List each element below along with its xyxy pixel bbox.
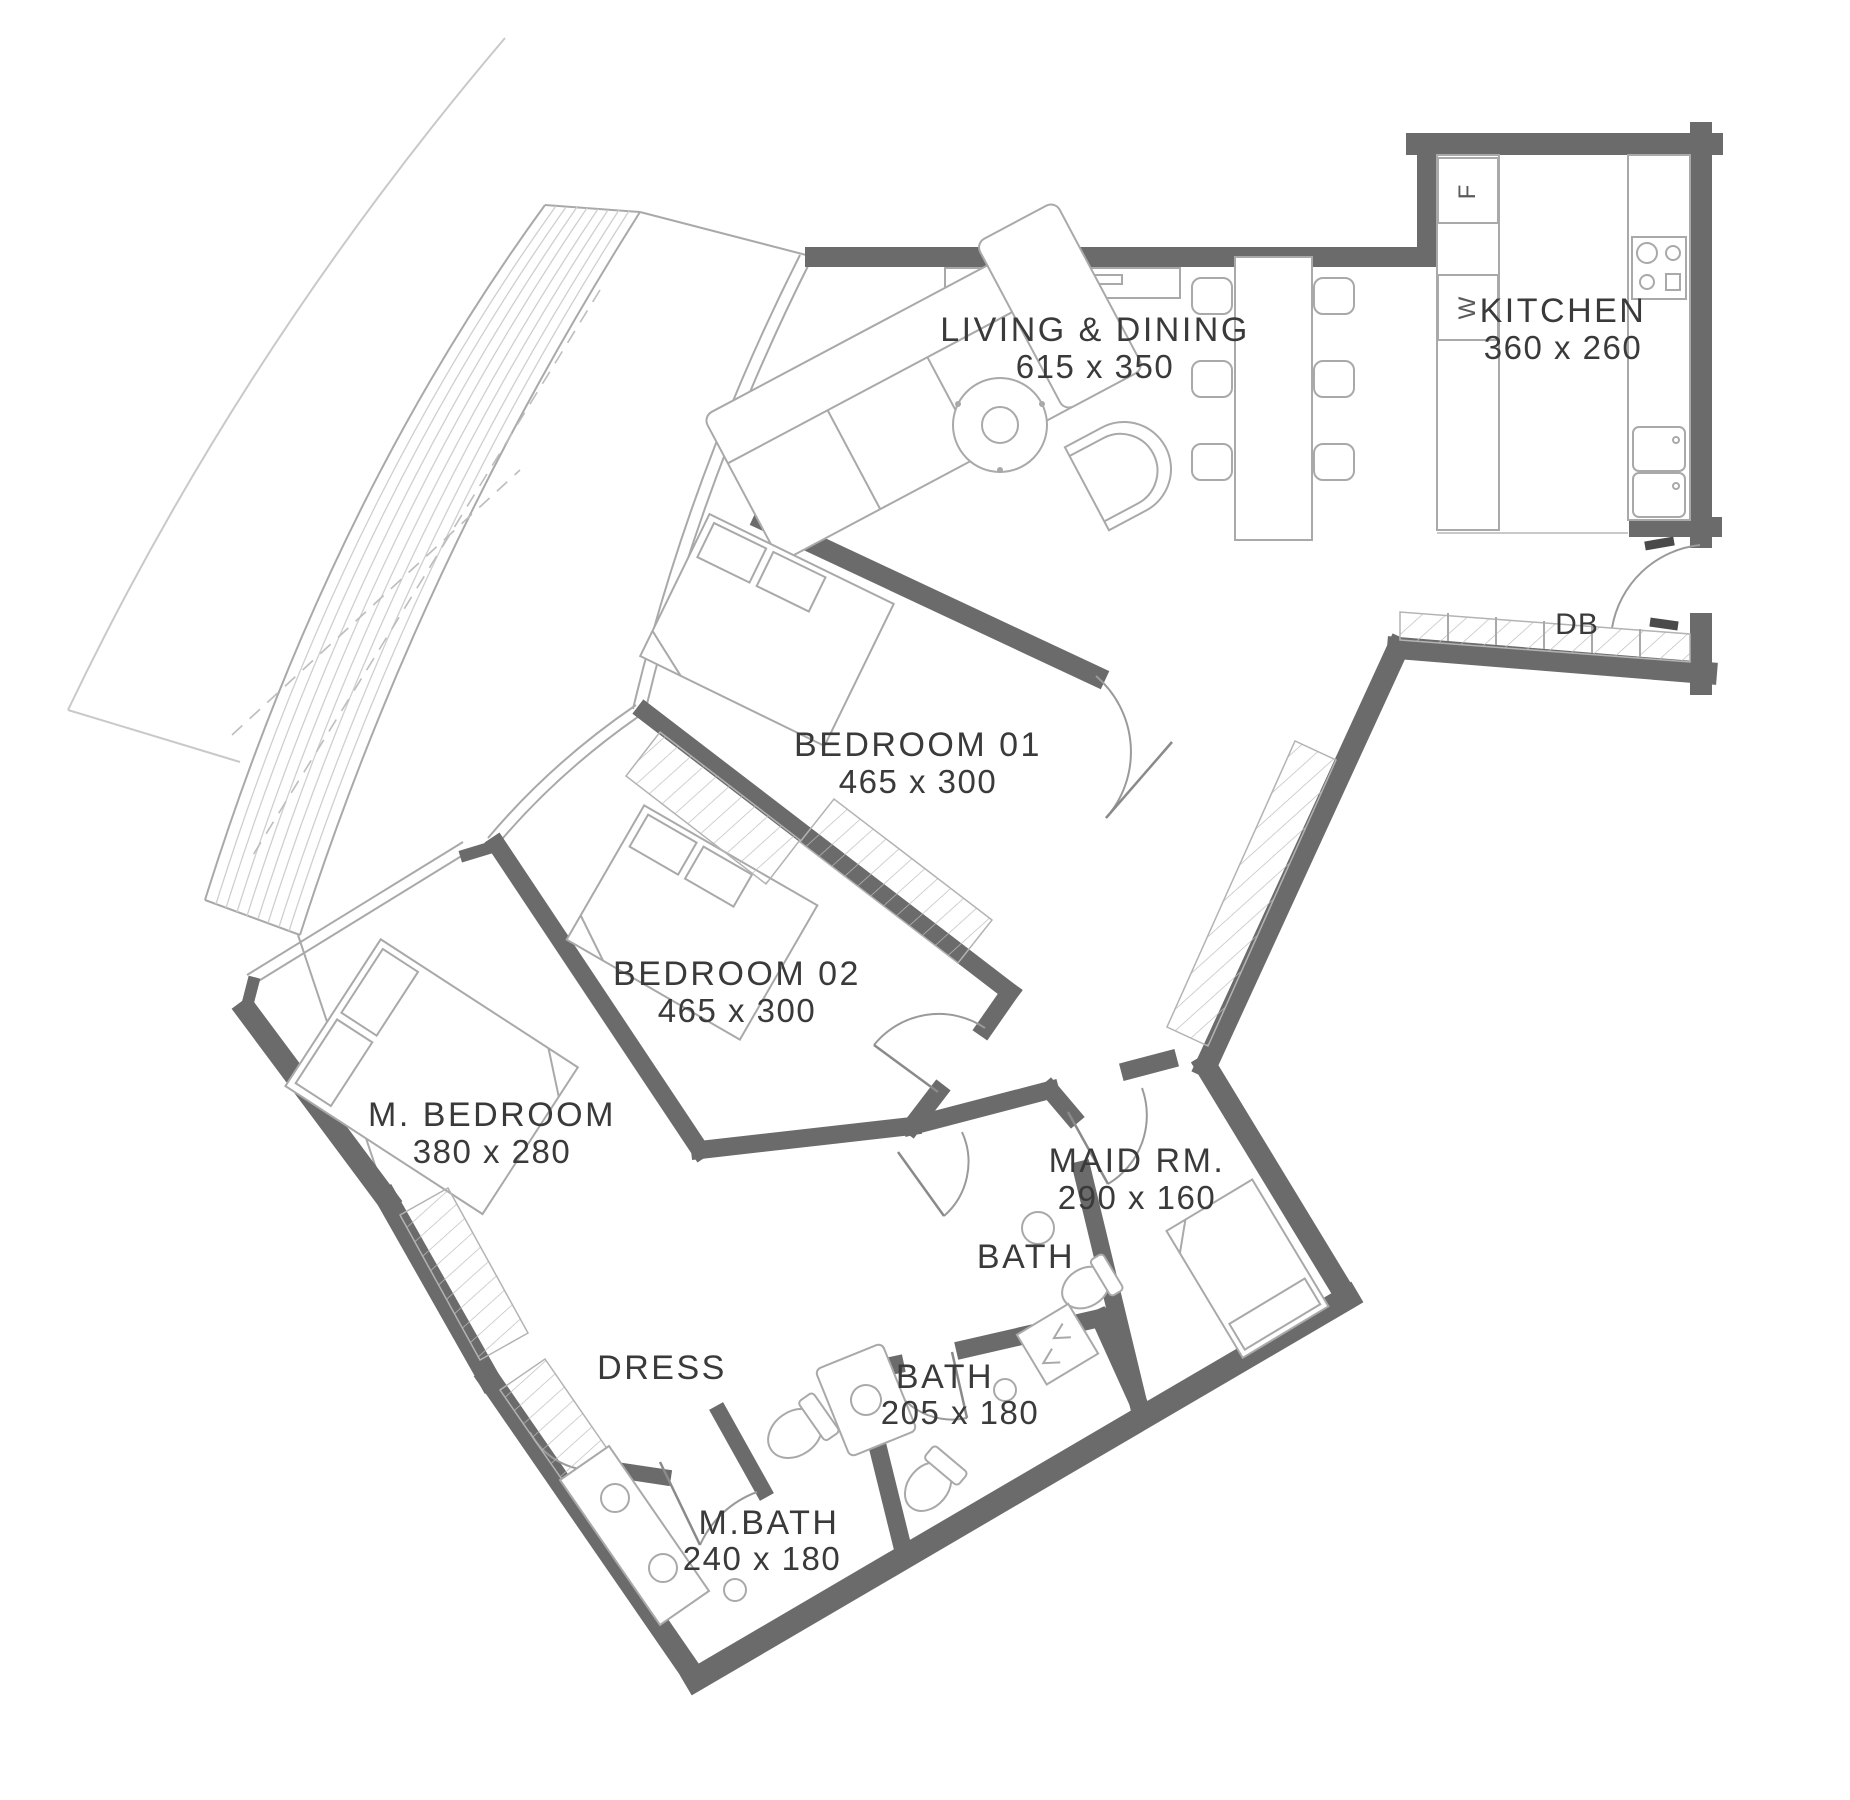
label-kitchen: KITCHEN	[1480, 292, 1647, 330]
stove-icon	[1632, 237, 1686, 299]
deck-inner-edge	[300, 212, 640, 935]
dims-living-dining: 615 x 350	[1016, 348, 1174, 385]
bedroom02-door	[874, 1014, 985, 1092]
dims-master-bedroom: 380 x 280	[413, 1133, 571, 1170]
label-maid-room: MAID RM.	[1049, 1142, 1226, 1180]
dims-kitchen: 360 x 260	[1484, 329, 1642, 366]
master-balcony-slider	[247, 842, 468, 985]
bedroom02-window-inner	[488, 705, 636, 838]
bedroom02-window	[497, 712, 645, 845]
bedroom01-closet	[800, 799, 992, 963]
bath2-toilet	[894, 1445, 968, 1522]
floor-plan-drawing: F W	[0, 0, 1850, 1800]
coffee-table	[953, 378, 1047, 473]
label-maid-bath: BATH	[977, 1238, 1075, 1276]
deck-to-living-line	[640, 212, 810, 256]
entry-door-leaf-bottom	[1650, 622, 1678, 626]
entry-door	[1612, 541, 1700, 628]
wall-wing-bottom	[696, 1298, 1347, 1679]
floor-plan-page: F W	[0, 0, 1850, 1800]
fridge-label: F	[1454, 185, 1481, 200]
label-living-dining: LIVING & DINING	[940, 311, 1250, 349]
wall-corridor-outer	[1206, 648, 1398, 1066]
dining-table-set	[1192, 257, 1354, 540]
label-master-bedroom: M. BEDROOM	[368, 1096, 616, 1134]
label-bedroom02: BEDROOM 02	[613, 955, 861, 993]
label-shared-bath: BATH	[896, 1358, 994, 1396]
site-outer-curve	[68, 38, 505, 710]
wall-corridor-end-pier	[1130, 1060, 1168, 1070]
label-db: DB	[1555, 608, 1599, 641]
corridor-closet	[1167, 741, 1336, 1046]
washer-label: W	[1454, 296, 1481, 319]
deck-planks	[216, 206, 629, 931]
mbath-drain	[724, 1579, 746, 1601]
entry-door-leaf-top	[1645, 541, 1674, 546]
dims-shared-bath: 205 x 180	[881, 1394, 1039, 1431]
doors	[530, 541, 1700, 1545]
master-bedroom-furniture	[285, 939, 577, 1214]
dining-table	[1235, 257, 1312, 540]
dims-bedroom01: 465 x 300	[839, 763, 997, 800]
maid-bath-door	[898, 1132, 968, 1216]
master-bed	[285, 939, 577, 1214]
wall-bedroom02-right-a	[985, 992, 1010, 1028]
bedroom01-door	[1096, 676, 1172, 818]
deck-outer-edge	[205, 205, 545, 900]
dims-master-bath: 240 x 180	[683, 1540, 841, 1577]
armchair	[1065, 405, 1188, 530]
dims-bedroom02: 465 x 300	[658, 992, 816, 1029]
label-dress: DRESS	[597, 1349, 727, 1387]
wall-dress-north	[700, 1126, 912, 1150]
label-bedroom01: BEDROOM 01	[794, 726, 1042, 764]
label-master-bath: M.BATH	[699, 1504, 840, 1542]
kitchen-sink-icon	[1633, 427, 1685, 517]
site-radial-line	[68, 710, 240, 762]
dims-maid-room: 290 x 160	[1058, 1179, 1216, 1216]
wall-mbath-door-pier	[720, 1413, 763, 1490]
